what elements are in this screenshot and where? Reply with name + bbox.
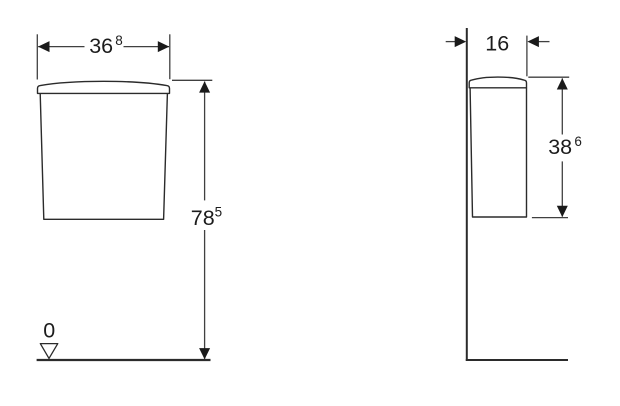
svg-text:36: 36 [89, 34, 113, 58]
svg-text:16: 16 [485, 31, 509, 55]
svg-text:38: 38 [548, 135, 572, 159]
svg-text:8: 8 [115, 33, 123, 48]
svg-text:0: 0 [43, 318, 55, 342]
svg-text:78: 78 [191, 206, 215, 230]
svg-text:6: 6 [574, 134, 582, 149]
svg-text:5: 5 [215, 205, 223, 220]
